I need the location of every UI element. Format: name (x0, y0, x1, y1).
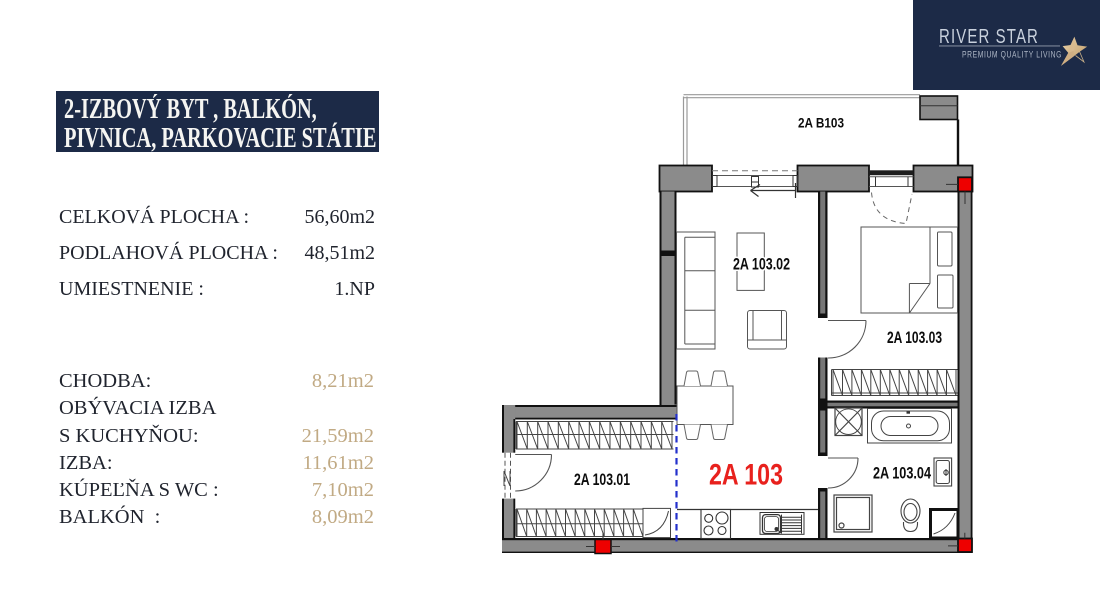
svg-text:2A B103: 2A B103 (798, 116, 844, 131)
svg-text:2A 103.04: 2A 103.04 (873, 465, 932, 483)
svg-text:PREMIUM QUALITY LIVING: PREMIUM QUALITY LIVING (962, 50, 1062, 60)
svg-text:2A 103.01: 2A 103.01 (574, 471, 630, 489)
svg-text:2A 103.02: 2A 103.02 (733, 256, 790, 274)
svg-text:2A 103.03: 2A 103.03 (887, 329, 942, 347)
svg-text:2A 103: 2A 103 (709, 459, 783, 492)
svg-text:RIVER STAR: RIVER STAR (939, 26, 1039, 48)
